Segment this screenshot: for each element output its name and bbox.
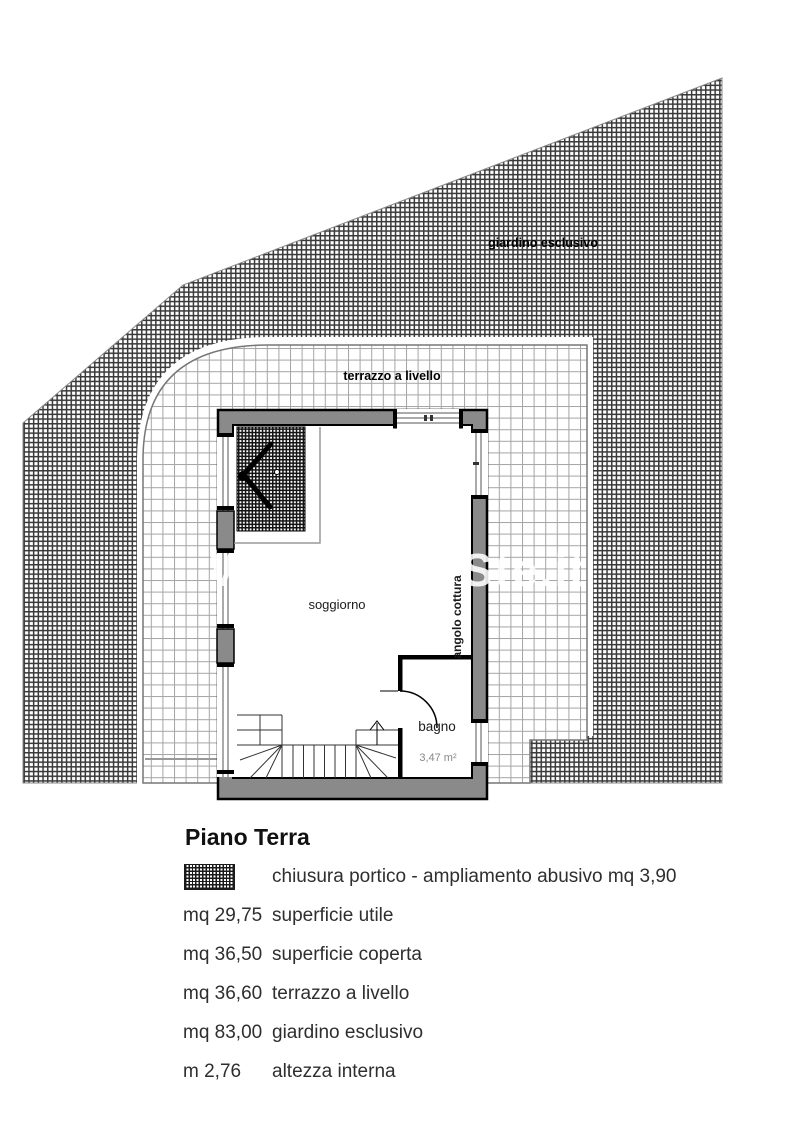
portico-swatch [184,864,235,890]
wall-pier [217,629,234,663]
legend-label: superficie utile [272,905,393,927]
legend-value: mq 36,60 [183,983,262,1005]
watermark-left: W [210,544,254,596]
window-right-bath [471,719,488,766]
legend-value: mq 36,50 [183,944,262,966]
window-right-upper [471,429,488,499]
legend-label: altezza interna [272,1061,396,1083]
legend-value: mq 83,00 [183,1022,262,1044]
page-title: Piano Terra [185,824,310,851]
legend-label: giardino esclusivo [272,1022,423,1044]
legend-swatch-label: chiusura portico - ampliamento abusivo m… [272,866,676,888]
watermark-right: Ste.it [462,544,586,596]
legend-label: superficie coperta [272,944,422,966]
terrace-label: terrazzo a livello [343,369,441,383]
window-top [393,409,463,429]
legend-label: terrazzo a livello [272,983,409,1005]
bathroom-area-value: 3,47 m² [419,752,457,764]
floorplan-page: giardino esclusivo terrazzo a livello so… [0,0,800,1130]
legend: Piano Terra chiusura portico - ampliamen… [0,0,800,300]
living-room-label: soggiorno [308,597,365,612]
legend-value: m 2,76 [183,1061,241,1083]
window-left [217,433,234,777]
legend-value: mq 29,75 [183,905,262,927]
bathroom-label: bagno [418,719,456,734]
